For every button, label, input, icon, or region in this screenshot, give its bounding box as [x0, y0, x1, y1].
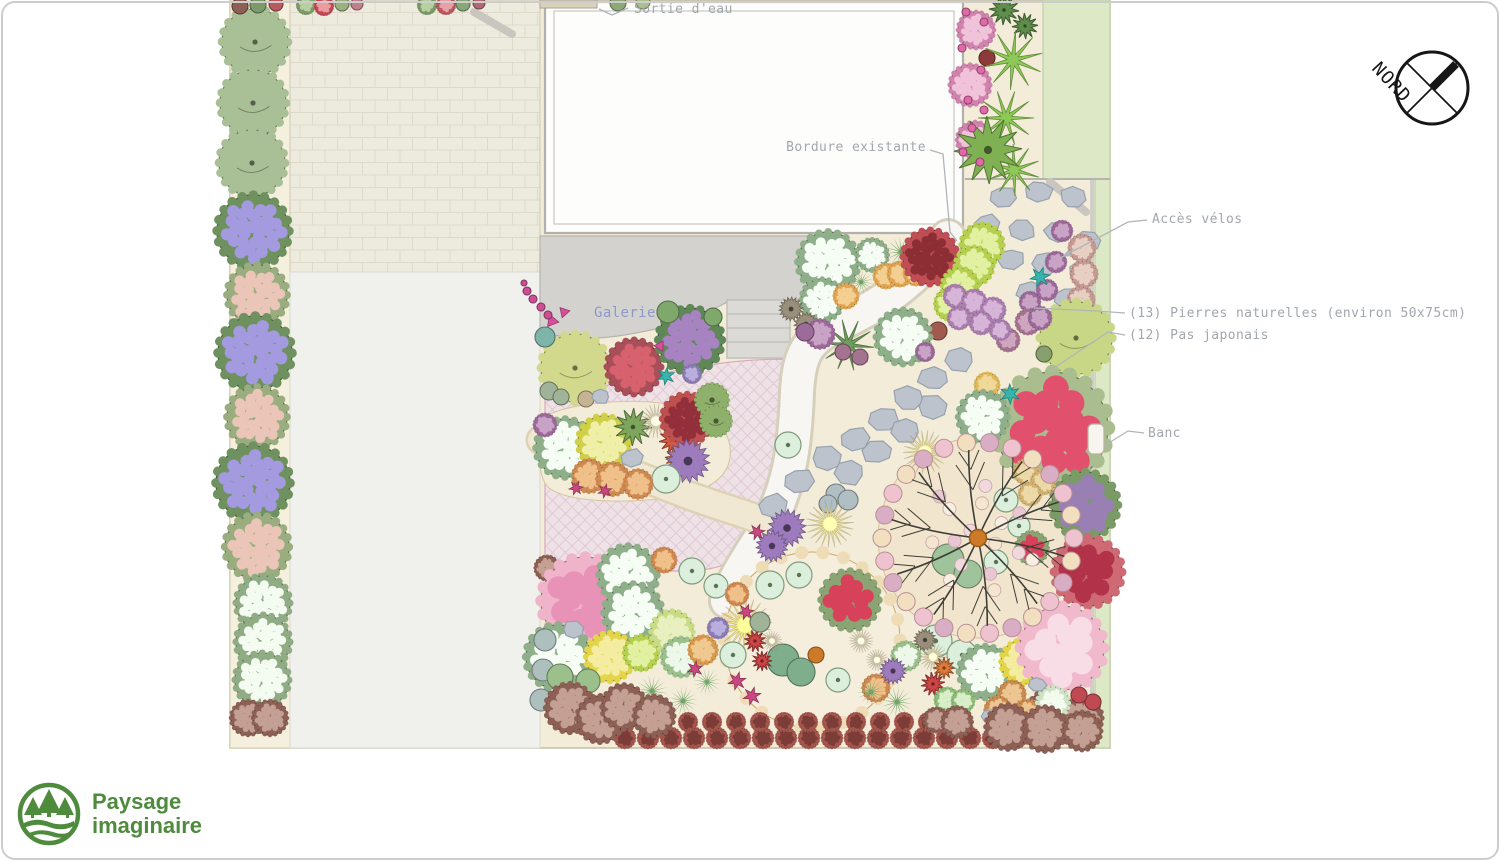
label-pas-japonais: (12) Pas japonais — [1129, 328, 1269, 343]
plant-d — [683, 365, 701, 383]
plant-d — [217, 195, 289, 267]
plant-c — [534, 629, 556, 651]
plant-d — [607, 340, 661, 394]
plant-t — [222, 9, 288, 75]
plant-c — [980, 106, 988, 114]
plant-d — [1019, 483, 1041, 505]
plant-m — [720, 642, 746, 668]
plant-d — [689, 636, 717, 664]
building — [545, 2, 963, 233]
plant-d — [216, 446, 290, 520]
plant-c — [838, 490, 858, 510]
logo-mark-icon — [16, 781, 82, 847]
plant-c — [977, 66, 985, 74]
plant-c — [835, 344, 851, 360]
plant-d — [418, 0, 436, 14]
label-galerie: Galerie — [594, 305, 656, 321]
plant-d — [1071, 261, 1097, 287]
plant-c — [964, 96, 972, 104]
plant-d — [218, 316, 292, 390]
plant-c — [958, 44, 966, 52]
plant-c — [1071, 687, 1087, 703]
lawn — [290, 272, 540, 748]
plant-d — [708, 618, 728, 638]
plant-d — [958, 12, 994, 48]
plant-d — [652, 548, 676, 572]
plant-d — [799, 713, 817, 731]
garden-plan-drawing: Sortie d'eau Bordure existante Accès vél… — [0, 0, 1500, 861]
plant-d — [227, 387, 287, 447]
plant-d — [315, 0, 333, 15]
plant-c — [976, 158, 984, 166]
plant-d — [823, 713, 841, 731]
plant-c — [808, 647, 824, 663]
plant-t — [1040, 302, 1112, 374]
plant-c — [553, 389, 569, 405]
label-bordure-existante: Bordure existante — [786, 140, 926, 155]
plant-d — [1052, 221, 1072, 241]
plant-t — [701, 406, 731, 436]
plant-c — [959, 148, 967, 156]
plant-c — [535, 327, 555, 347]
plant-d — [895, 713, 913, 731]
plant-d — [1046, 252, 1066, 272]
plant-d — [297, 0, 315, 14]
plant-d — [1054, 538, 1122, 606]
plant-m — [775, 432, 801, 458]
plant-d — [1069, 235, 1095, 261]
plant-d — [634, 696, 674, 736]
plant-d — [916, 343, 934, 361]
bed-stone — [564, 621, 584, 638]
plant-c — [456, 0, 470, 11]
plant-d — [990, 320, 1010, 340]
green-lawn-top — [1043, 0, 1110, 179]
plant-c — [250, 0, 266, 13]
plant-d — [727, 713, 745, 731]
plant-d — [703, 713, 721, 731]
plant-m — [786, 562, 812, 588]
plant-c — [980, 18, 988, 26]
plant-m — [679, 558, 705, 584]
steps — [727, 300, 790, 358]
plant-c — [232, 0, 248, 14]
plant-c — [521, 280, 527, 286]
plant-c — [351, 0, 363, 10]
plant-c — [852, 349, 868, 365]
plant-c — [537, 303, 545, 311]
plant-d — [970, 312, 992, 334]
north-compass: NORD — [1367, 52, 1468, 124]
plant-c — [750, 612, 770, 632]
plant-c — [335, 0, 349, 11]
plant-m — [826, 668, 850, 692]
plant-d — [437, 0, 455, 14]
plant-d — [225, 515, 289, 579]
plant-d — [751, 713, 769, 731]
plant-c — [523, 287, 531, 295]
bench — [1088, 424, 1104, 454]
plant-d — [1052, 472, 1118, 538]
plant-c — [704, 308, 722, 326]
label-acces-velos: Accès vélos — [1152, 212, 1243, 227]
bed-stone — [592, 389, 609, 403]
plant-d — [1037, 280, 1057, 300]
plant-c — [578, 391, 594, 407]
plant-c — [962, 8, 970, 16]
plant-c — [657, 301, 679, 323]
garden-plan-sheet: Sortie d'eau Bordure existante Accès vél… — [0, 0, 1500, 861]
plant-c — [473, 0, 485, 9]
plant-c — [787, 658, 815, 686]
plant-t — [219, 130, 285, 196]
plant-c — [796, 323, 814, 341]
plant-d — [871, 713, 889, 731]
plant-d — [847, 713, 865, 731]
plant-d — [726, 583, 748, 605]
plant-m — [756, 571, 784, 599]
plant-d — [253, 701, 287, 735]
label-banc: Banc — [1148, 426, 1181, 441]
plant-d — [679, 713, 697, 731]
paved-terrace — [290, 0, 540, 272]
plant-d — [775, 713, 793, 731]
plant-d — [834, 284, 858, 308]
logo-line1: Paysage — [92, 790, 202, 814]
plant-d — [624, 470, 652, 498]
label-sortie-deau: Sortie d'eau — [634, 2, 733, 17]
plant-d — [821, 571, 879, 629]
plant-d — [948, 307, 970, 329]
plant-m — [652, 465, 680, 493]
logo-line2: imaginaire — [92, 814, 202, 838]
plant-d — [942, 707, 972, 737]
plant-c — [269, 0, 283, 11]
label-pierres-naturelles: (13) Pierres naturelles (environ 50x75cm… — [1129, 306, 1466, 321]
plant-c — [968, 124, 976, 132]
logo: Paysage imaginaire — [16, 781, 202, 847]
plant-d — [534, 414, 556, 436]
plant-g — [564, 621, 584, 638]
plant-d — [1063, 712, 1101, 750]
plant-d — [1023, 707, 1067, 751]
plant-c — [529, 295, 537, 303]
plant-g — [592, 389, 609, 403]
water-outlet — [540, 0, 597, 8]
plant-c — [1036, 346, 1052, 362]
plant-m — [704, 574, 728, 598]
plant-d — [235, 653, 289, 707]
plant-d — [1029, 307, 1051, 329]
plant-c — [544, 311, 552, 319]
